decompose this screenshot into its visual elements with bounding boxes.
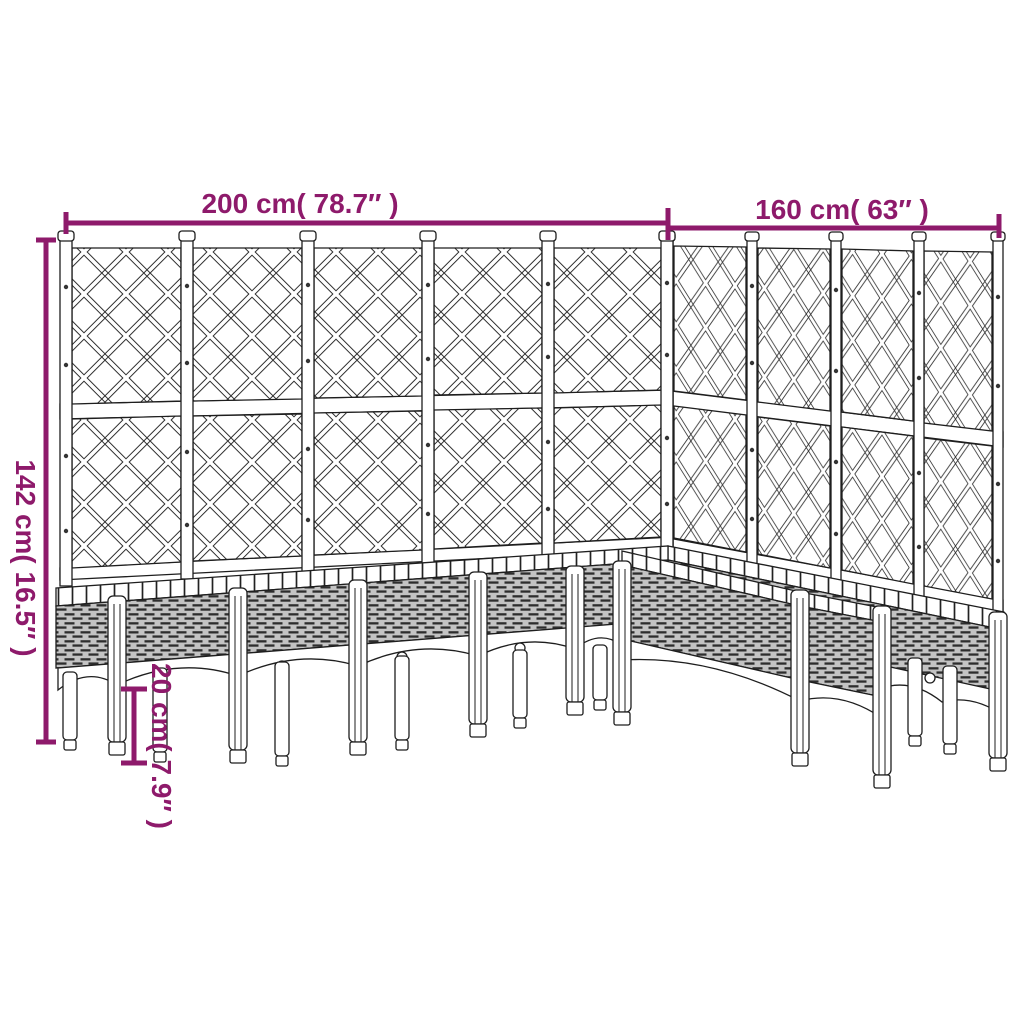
dim-label-160cm: 160 cm( 63″ ) bbox=[755, 194, 929, 225]
dim-width-left-wall: 200 cm( 78.7″ ) bbox=[66, 188, 668, 240]
planter-front-legs-right bbox=[989, 612, 1007, 771]
planter-trellis-drawing: 200 cm( 78.7″ ) 160 cm( 63″ ) 142 cm( 16… bbox=[0, 0, 1024, 1024]
product-dimension-diagram: 200 cm( 78.7″ ) 160 cm( 63″ ) 142 cm( 16… bbox=[0, 0, 1024, 1024]
dim-label-142cm: 142 cm( 16.5″ ) bbox=[10, 459, 41, 656]
dim-label-20cm: 20 cm( 7.9″ ) bbox=[146, 663, 177, 829]
dim-height-total: 142 cm( 16.5″ ) bbox=[10, 240, 56, 742]
dim-label-200cm: 200 cm( 78.7″ ) bbox=[201, 188, 398, 219]
trellis-left-wall bbox=[58, 231, 675, 586]
dim-height-legs: 20 cm( 7.9″ ) bbox=[121, 663, 177, 829]
